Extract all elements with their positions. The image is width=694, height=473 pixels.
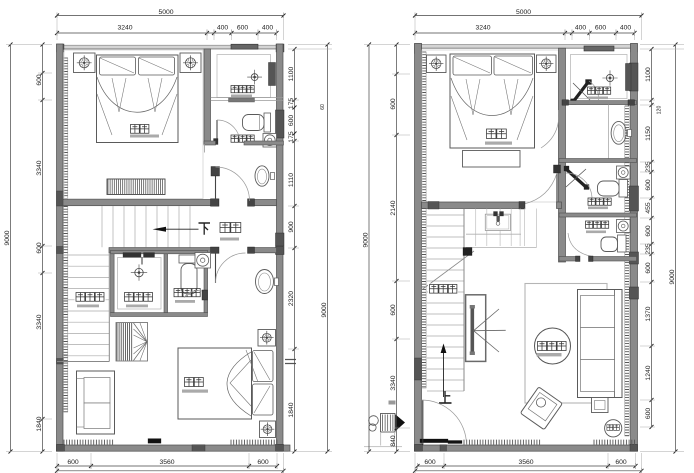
svg-text:400: 400 (575, 25, 587, 32)
svg-text:2320: 2320 (288, 291, 295, 306)
svg-text:600: 600 (645, 408, 652, 420)
svg-text:3340: 3340 (36, 314, 43, 329)
svg-text:3240: 3240 (117, 25, 132, 32)
svg-text:2140: 2140 (390, 200, 397, 215)
svg-text:1370: 1370 (645, 306, 652, 321)
svg-text:9000: 9000 (363, 232, 370, 247)
svg-text:3340: 3340 (36, 160, 43, 175)
svg-text:400: 400 (262, 25, 274, 32)
svg-text:1110: 1110 (288, 173, 295, 187)
svg-text:3560: 3560 (518, 459, 533, 466)
svg-text:600: 600 (645, 262, 652, 274)
svg-text:600: 600 (67, 459, 79, 466)
svg-text:600: 600 (615, 459, 627, 466)
svg-text:3560: 3560 (159, 459, 174, 466)
svg-text:3340: 3340 (390, 375, 397, 390)
svg-text:120: 120 (657, 106, 663, 115)
svg-text:600: 600 (645, 225, 652, 237)
svg-text:1100: 1100 (645, 67, 652, 82)
svg-text:600: 600 (390, 98, 397, 110)
svg-text:600: 600 (237, 25, 249, 32)
svg-text:235: 235 (645, 243, 652, 255)
svg-text:3240: 3240 (475, 25, 490, 32)
svg-text:5000: 5000 (516, 9, 531, 16)
svg-text:1840: 1840 (36, 416, 43, 431)
svg-text:9000: 9000 (321, 302, 328, 317)
svg-text:600: 600 (595, 25, 607, 32)
svg-text:400: 400 (217, 25, 229, 32)
svg-text:1100: 1100 (288, 66, 295, 81)
svg-text:600: 600 (36, 74, 43, 86)
svg-text:600: 600 (645, 179, 652, 191)
svg-text:235: 235 (645, 161, 652, 173)
svg-text:600: 600 (36, 242, 43, 254)
svg-text:5000: 5000 (158, 9, 173, 16)
svg-text:840: 840 (390, 435, 397, 447)
svg-text:9000: 9000 (669, 269, 676, 284)
svg-text:1150: 1150 (645, 126, 652, 141)
svg-text:1240: 1240 (645, 365, 652, 380)
svg-text:1840: 1840 (288, 402, 295, 417)
svg-text:600: 600 (257, 459, 269, 466)
svg-text:60: 60 (320, 104, 326, 110)
svg-text:900: 900 (288, 221, 295, 233)
svg-text:175: 175 (288, 98, 295, 110)
svg-text:600: 600 (424, 459, 436, 466)
svg-text:9000: 9000 (4, 230, 11, 245)
svg-text:600: 600 (390, 304, 397, 316)
svg-text:400: 400 (620, 25, 632, 32)
svg-text:600: 600 (288, 115, 295, 127)
svg-text:455: 455 (645, 202, 652, 214)
